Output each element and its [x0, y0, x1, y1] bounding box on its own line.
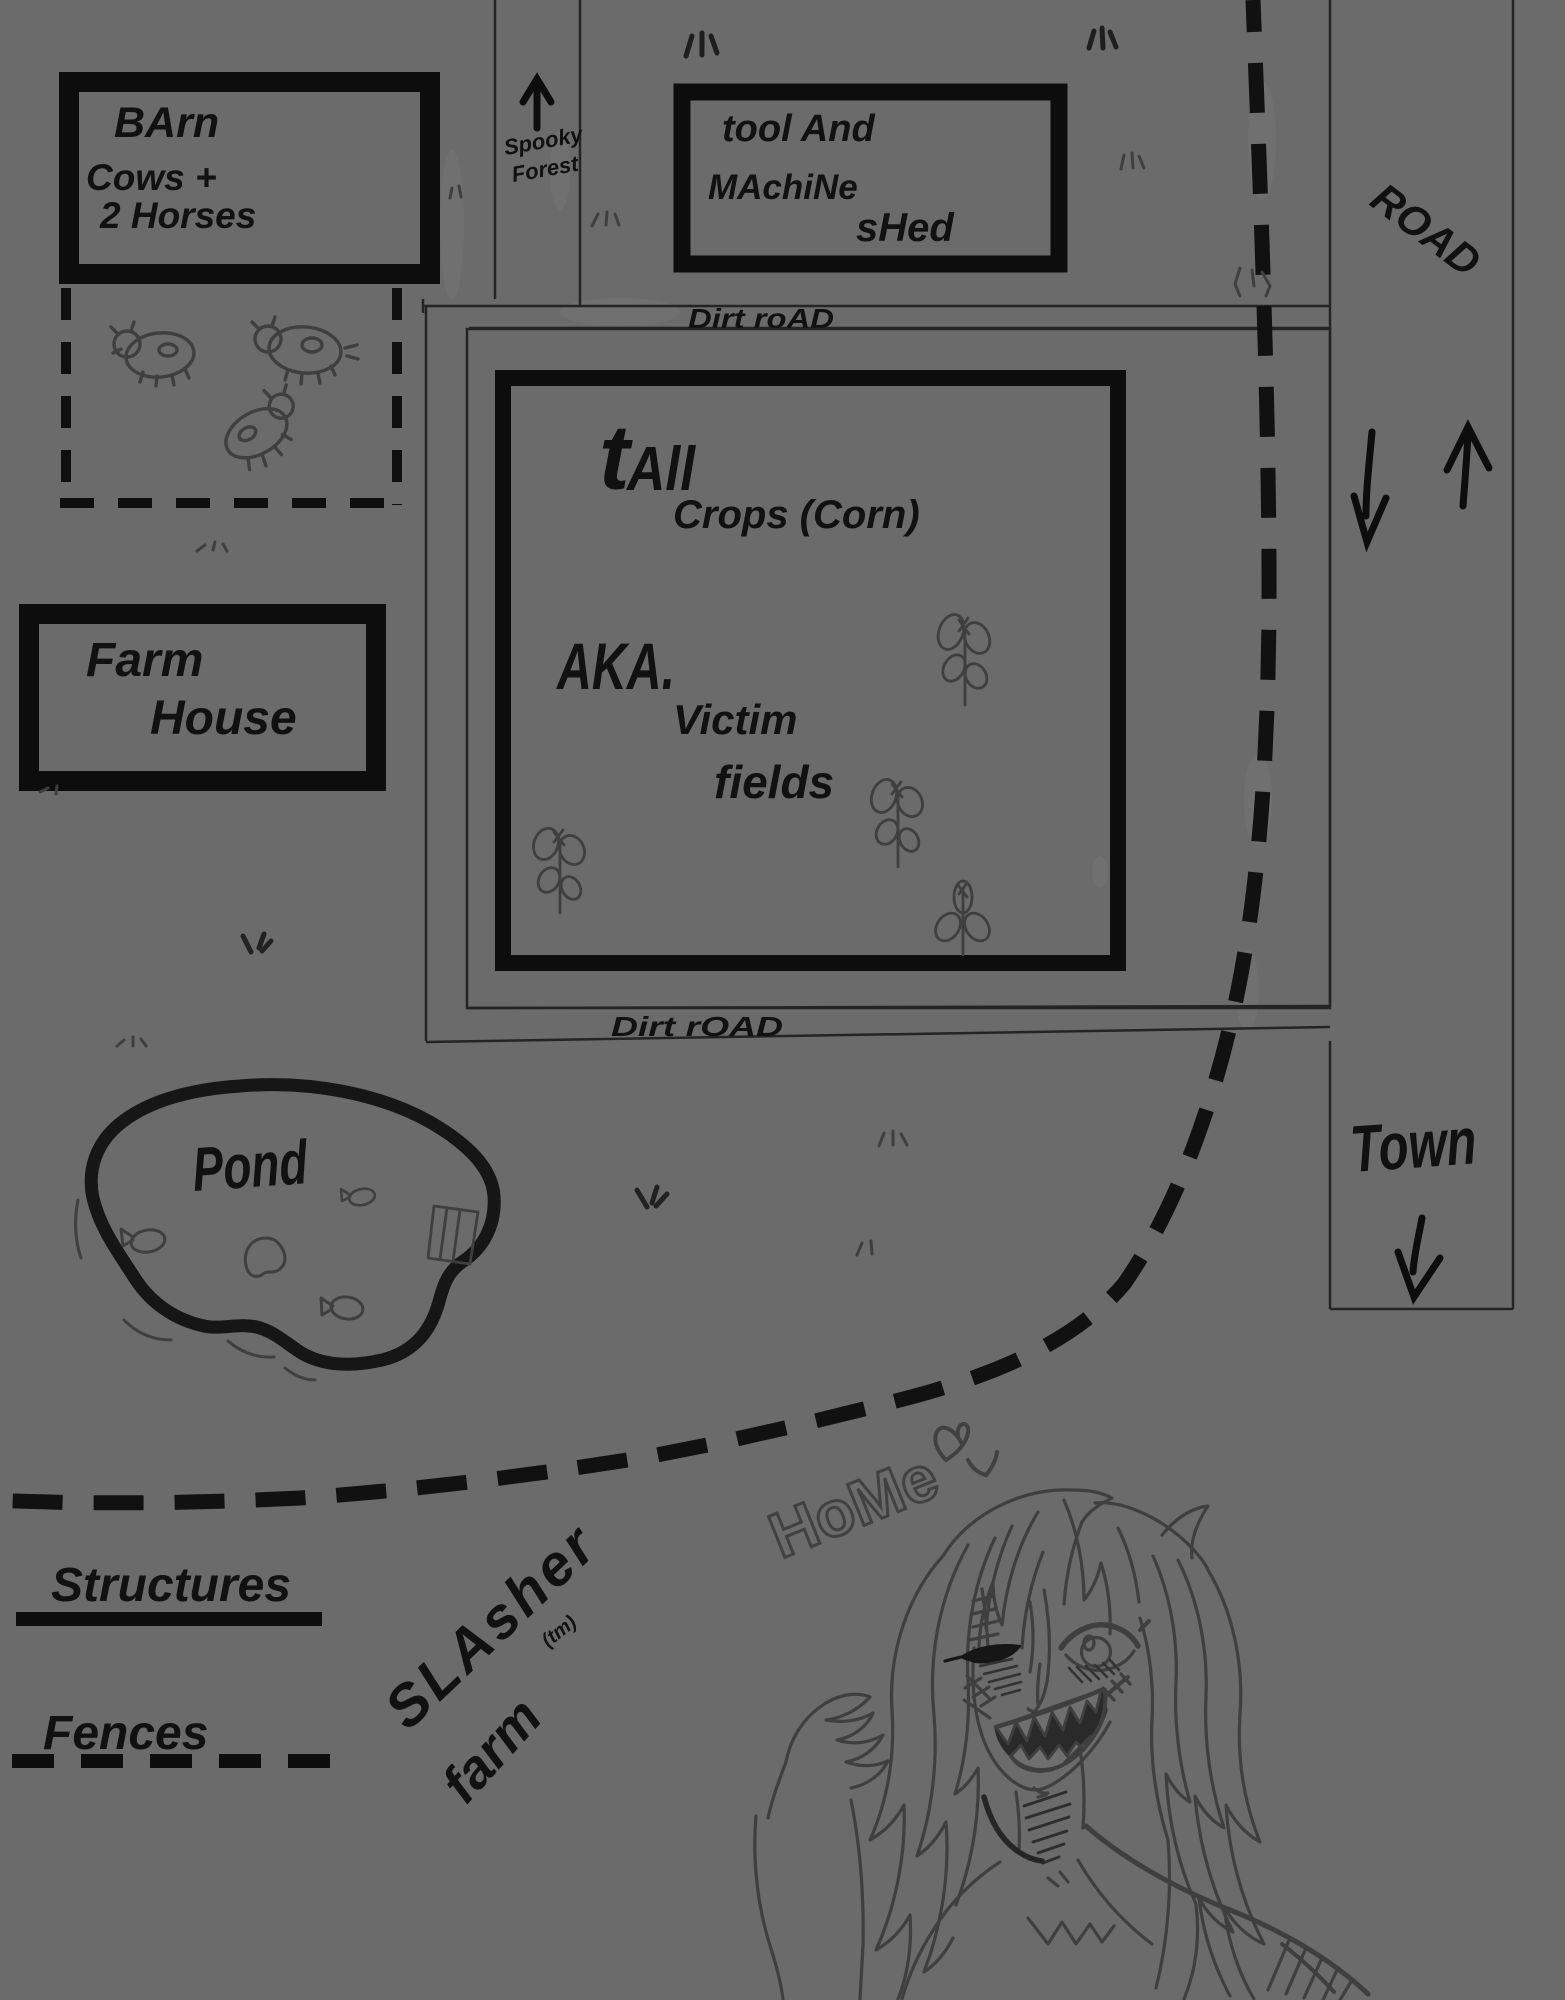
svg-text:Dirt rOAD: Dirt rOAD	[611, 1011, 783, 1042]
svg-text:MAchiNe: MAchiNe	[708, 168, 858, 207]
svg-text:House: House	[150, 692, 297, 745]
svg-text:fields: fields	[714, 756, 834, 808]
svg-text:Crops (Corn): Crops (Corn)	[673, 493, 920, 537]
svg-text:Victim: Victim	[673, 696, 797, 743]
svg-text:Farm: Farm	[86, 634, 203, 687]
svg-text:Pond: Pond	[190, 1128, 310, 1205]
svg-text:BArn: BArn	[114, 99, 219, 147]
svg-text:Structures: Structures	[51, 1559, 291, 1612]
svg-text:tool And: tool And	[722, 108, 875, 150]
svg-text:Cows +: Cows +	[86, 157, 217, 198]
svg-text:AKA.: AKA.	[556, 629, 675, 703]
svg-text:Town: Town	[1348, 1103, 1479, 1186]
svg-text:Fences: Fences	[43, 1707, 208, 1760]
svg-text:sHed: sHed	[856, 206, 955, 250]
svg-text:2 Horses: 2 Horses	[99, 195, 256, 236]
